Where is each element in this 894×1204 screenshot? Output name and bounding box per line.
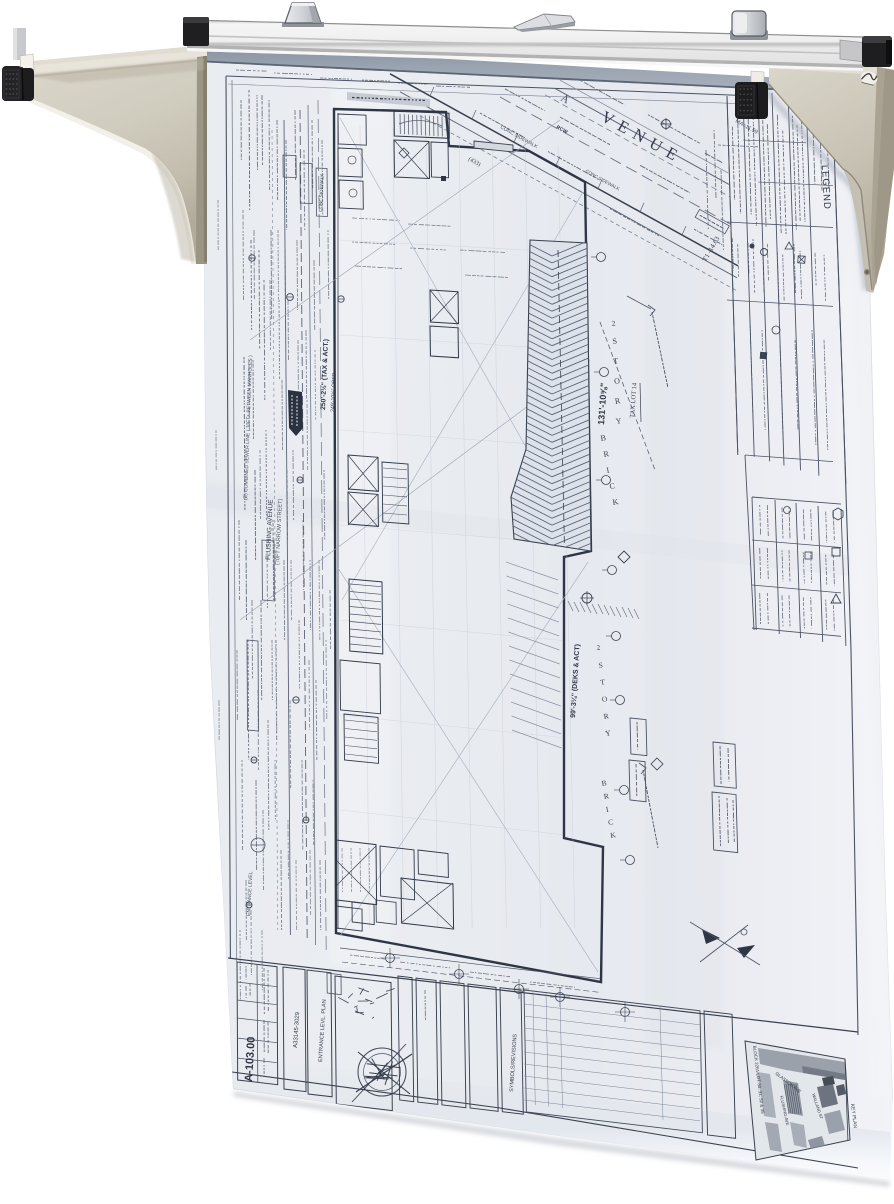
svg-text:LEGEND: LEGEND xyxy=(819,165,832,211)
